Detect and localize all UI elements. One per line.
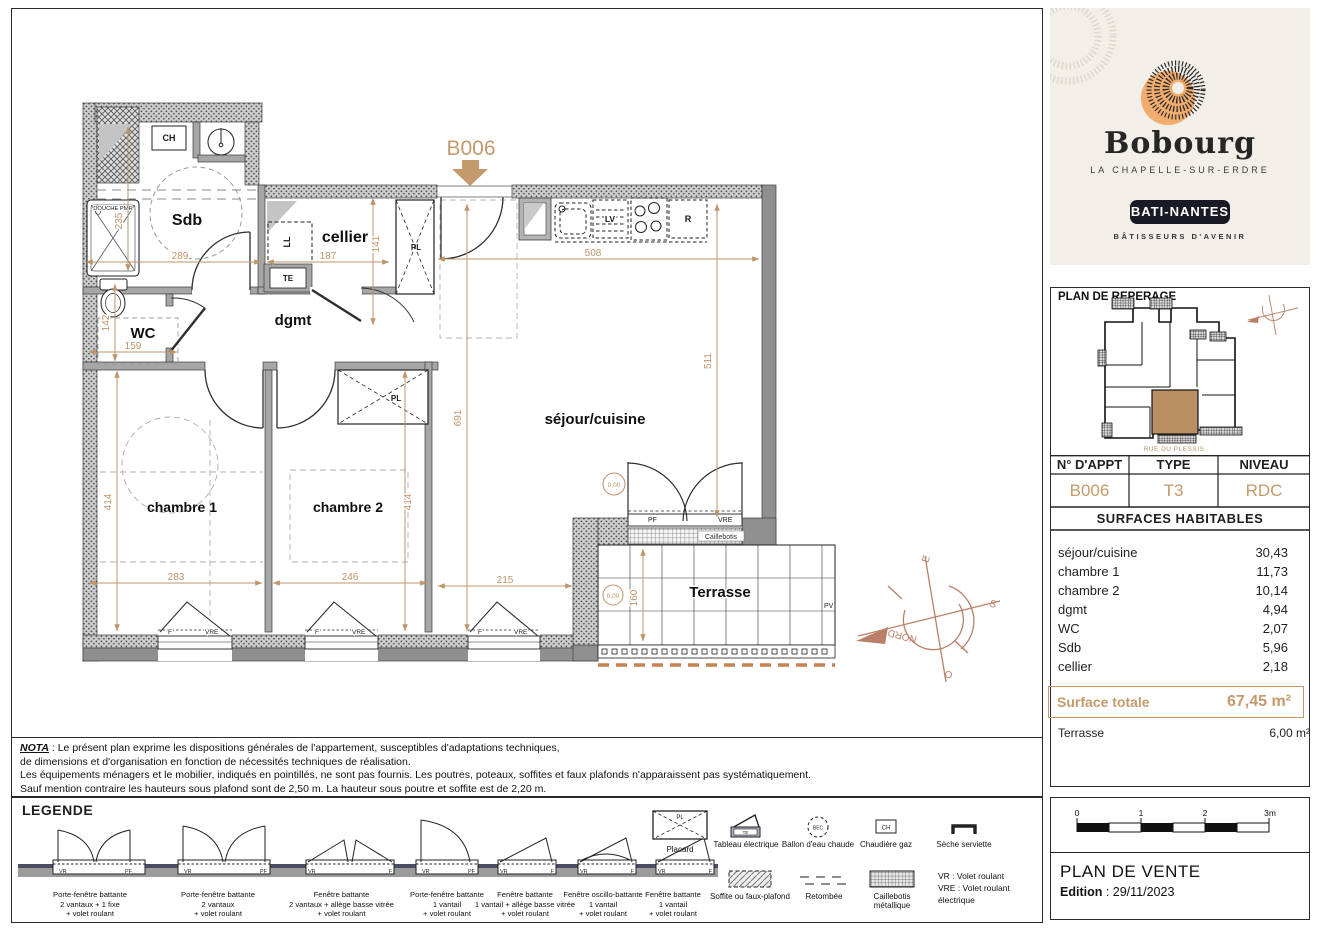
floor-plan-drawing: CH DOUCHE PMR LL — [11, 8, 1043, 737]
legend-item-3: Fenêtre battante2 vantaux + allège basse… — [275, 890, 408, 919]
vr-abbreviations: VR : Volet roulant VRE : Volet roulant é… — [938, 870, 1038, 906]
bedroom2-closet: PL — [338, 370, 428, 424]
svg-text:PF: PF — [468, 869, 476, 875]
shower-label: DOUCHE PMR — [93, 206, 133, 212]
room-label-wc: WC — [131, 325, 156, 342]
entry-opening — [437, 186, 512, 197]
svg-text:289: 289 — [172, 251, 189, 262]
apt-col-level: NIVEAU — [1218, 455, 1310, 474]
surfaces-title: SURFACES HABITABLES — [1050, 507, 1310, 530]
pv-label: PV — [824, 603, 834, 610]
room-label-sdb: Sdb — [172, 212, 202, 229]
svg-text:VR: VR — [308, 869, 316, 875]
apt-number: B006 — [1050, 474, 1129, 507]
svg-text:VRE: VRE — [205, 629, 219, 636]
caillebotis-label: Caillebotis — [705, 534, 738, 541]
svg-text:PF: PF — [125, 869, 133, 875]
svg-text:141: 141 — [371, 235, 382, 252]
boiler-label: CH — [163, 133, 176, 143]
room-label-dgmt: dgmt — [275, 312, 312, 329]
water-heater-icon: BEC — [805, 814, 831, 840]
locator-unit-highlight — [1152, 390, 1198, 434]
svg-text:215: 215 — [497, 575, 514, 586]
svg-text:414: 414 — [403, 493, 414, 510]
floor-plan-sheet: CH DOUCHE PMR LL — [0, 0, 1324, 937]
terrace-surface-row: Terrasse6,00 m² — [1050, 726, 1322, 740]
edition-line: Edition : 29/11/2023 — [1060, 885, 1174, 899]
svg-text:VR: VR — [184, 869, 192, 875]
svg-text:S: S — [988, 598, 998, 611]
electrical-board-label: TE — [283, 274, 294, 283]
apt-col-number: N° D'APPT — [1050, 455, 1129, 474]
svg-text:VRE: VRE — [718, 517, 733, 524]
fridge-label: R — [685, 214, 692, 224]
nota-text: NOTA : Le présent plan exprime les dispo… — [20, 742, 1030, 796]
table-dashed — [440, 200, 517, 338]
shower-pmr: DOUCHE PMR — [87, 200, 139, 276]
svg-text:TE: TE — [743, 830, 749, 835]
svg-text:414: 414 — [103, 493, 114, 510]
svg-text:187: 187 — [320, 251, 337, 262]
room-label-ch1: chambre 1 — [147, 499, 217, 515]
total-surface-label: Surface totale — [1057, 694, 1150, 710]
unit-tag-label: B006 — [446, 137, 495, 160]
bedroom2-closet-label: PL — [391, 394, 401, 403]
svg-text:BEC: BEC — [813, 826, 824, 832]
room-label-sejour: séjour/cuisine — [545, 411, 646, 428]
total-surface-box: Surface totale 67,45 m² — [1048, 686, 1304, 718]
room-label-cellier: cellier — [322, 229, 368, 246]
svg-text:283: 283 — [168, 572, 185, 583]
titleblock-divider — [1050, 852, 1310, 853]
placard-icon: PL — [645, 808, 715, 844]
gas-boiler-legend: Chaudière gaz — [842, 840, 930, 849]
svg-text:0,00: 0,00 — [607, 593, 620, 600]
svg-text:PF: PF — [648, 517, 657, 524]
towel-rail-icon — [950, 822, 978, 836]
svg-text:F: F — [168, 629, 172, 636]
svg-text:508: 508 — [585, 248, 602, 259]
svg-text:691: 691 — [453, 409, 464, 426]
svg-text:VR: VR — [500, 869, 508, 875]
grating-legend: Caillebotis métallique — [856, 892, 928, 910]
builder-badge: BATI-NANTES — [1130, 200, 1230, 224]
surfaces-table: séjour/cuisine30,43 chambre 111,73 chamb… — [1050, 543, 1302, 676]
kitchen-duct — [519, 198, 551, 240]
svg-text:VR: VR — [59, 869, 67, 875]
svg-text:511: 511 — [703, 353, 714, 369]
svg-text:246: 246 — [342, 572, 359, 583]
electrical-board-icon: TE — [728, 812, 764, 838]
builder-tagline: BÂTISSEURS D'AVENIR — [1050, 232, 1310, 241]
apt-level: RDC — [1218, 474, 1310, 507]
surface-row: dgmt4,94 — [1050, 600, 1302, 619]
legend-item-1: Porte-fenêtre battante2 vantaux + 1 fixe… — [30, 890, 150, 919]
plan-vente-title: PLAN DE VENTE — [1060, 862, 1201, 882]
svg-text:NORD: NORD — [887, 627, 918, 645]
surface-row: chambre 210,14 — [1050, 581, 1302, 600]
surface-row: Sdb5,96 — [1050, 638, 1302, 657]
svg-text:O: O — [944, 670, 953, 682]
entry-closet: PL — [396, 200, 434, 294]
compass: NORD E S O — [856, 554, 1000, 682]
room-label-ch2: chambre 2 — [313, 499, 383, 515]
unit-entry-arrow — [452, 160, 488, 186]
surface-row: chambre 111,73 — [1050, 562, 1302, 581]
scale-bar: 0 1 2 3m — [1050, 797, 1310, 852]
svg-text:VR: VR — [580, 869, 588, 875]
svg-text:E: E — [920, 554, 933, 564]
gas-boiler-icon: CH — [874, 818, 898, 836]
svg-text:142: 142 — [101, 314, 112, 331]
washing-machine: LL — [268, 222, 312, 262]
boiler-box: CH — [152, 126, 186, 150]
electrical-board: TE — [264, 264, 312, 292]
svg-text:VR: VR — [422, 869, 430, 875]
surface-row: séjour/cuisine30,43 — [1050, 543, 1302, 562]
grating-icon — [868, 869, 916, 889]
svg-text:235: 235 — [114, 212, 125, 229]
svg-text:VRE: VRE — [352, 629, 366, 636]
washing-machine-label: LL — [282, 236, 292, 247]
washbasin — [208, 128, 234, 155]
svg-text:3m: 3m — [1264, 808, 1276, 818]
total-surface-value: 67,45 m² — [1227, 693, 1291, 711]
brand-panel: Bobourg LA CHAPELLE-SUR-ERDRE BATI-NANTE… — [1050, 8, 1310, 265]
windows: F VRE F VRE F VRE — [158, 602, 540, 661]
svg-text:VR: VR — [658, 869, 666, 875]
terrace-label: Terrasse — [689, 584, 750, 601]
soffit-legend: Soffite ou faux-plafond — [700, 892, 800, 901]
entry-closet-label: PL — [411, 243, 421, 252]
toilet — [100, 279, 127, 317]
svg-text:159: 159 — [125, 341, 142, 352]
unit-tag: B006 — [446, 137, 495, 186]
svg-text:F: F — [478, 629, 482, 636]
apt-col-type: TYPE — [1129, 455, 1218, 474]
soffit-icon — [727, 869, 773, 889]
svg-text:PL: PL — [676, 815, 684, 821]
dishwasher-label: LV — [605, 214, 616, 224]
legend-title: LEGENDE — [22, 802, 93, 818]
svg-text:PF: PF — [260, 869, 268, 875]
svg-text:2: 2 — [1203, 808, 1208, 818]
surface-row: WC2,07 — [1050, 619, 1302, 638]
sunburst-icon — [1141, 63, 1203, 125]
surface-row: cellier2,18 — [1050, 657, 1302, 676]
locator-plan: RUE DU PLESSIS — [1050, 295, 1310, 455]
apt-type: T3 — [1129, 474, 1218, 507]
svg-text:0,00: 0,00 — [608, 482, 621, 489]
svg-text:160: 160 — [629, 589, 640, 606]
svg-text:F: F — [315, 629, 319, 636]
towel-rail-legend: Sèche serviette — [918, 840, 1010, 849]
brand-location: LA CHAPELLE-SUR-ERDRE — [1050, 165, 1310, 175]
street-label: RUE DU PLESSIS — [1144, 446, 1205, 453]
sdb-retombee — [97, 190, 258, 199]
caillebotis-strip: Caillebotis — [628, 528, 744, 544]
brand-name: Bobourg — [1050, 126, 1310, 161]
beam-drop-legend: Retombée — [792, 892, 856, 901]
beam-drop-icon — [798, 872, 850, 888]
svg-text:CH: CH — [882, 826, 891, 832]
nota-label: NOTA — [20, 742, 49, 754]
legend-item-2: Porte-fenêtre battante2 vantaux+ volet r… — [158, 890, 278, 919]
locator-compass-icon — [1247, 295, 1298, 335]
svg-text:0: 0 — [1075, 808, 1080, 818]
svg-text:1: 1 — [1139, 808, 1144, 818]
legend-symbols: VR PF VR PF VR F VR PF VR — [18, 818, 718, 886]
svg-text:VRE: VRE — [514, 629, 528, 636]
bedroom-furniture — [90, 417, 408, 618]
